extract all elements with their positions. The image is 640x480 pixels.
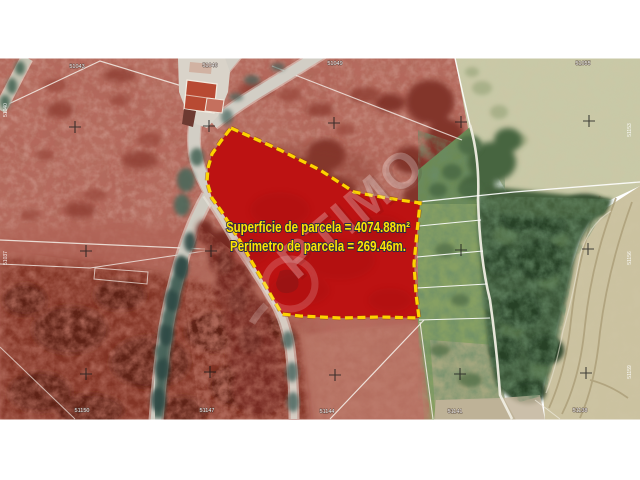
- svg-text:Superficie de parcela = 4074.8: Superficie de parcela = 4074.88m²: [226, 220, 410, 236]
- svg-text:51049: 51049: [327, 61, 342, 67]
- svg-text:51156: 51156: [627, 251, 633, 265]
- svg-text:51043: 51043: [69, 64, 84, 70]
- svg-text:51141: 51141: [448, 409, 463, 415]
- svg-text:51153: 51153: [627, 123, 633, 137]
- svg-text:51144: 51144: [320, 409, 335, 415]
- svg-text:51037: 51037: [3, 251, 9, 265]
- svg-text:51150: 51150: [75, 408, 90, 414]
- svg-text:Perímetro de parcela = 269.46m: Perímetro de parcela = 269.46m.: [230, 239, 406, 255]
- svg-text:51138: 51138: [573, 408, 588, 414]
- svg-text:51046: 51046: [202, 63, 217, 69]
- svg-text:51147: 51147: [200, 408, 215, 414]
- svg-text:51040: 51040: [3, 103, 9, 117]
- svg-text:51159: 51159: [627, 365, 633, 379]
- svg-text:51055: 51055: [575, 61, 590, 67]
